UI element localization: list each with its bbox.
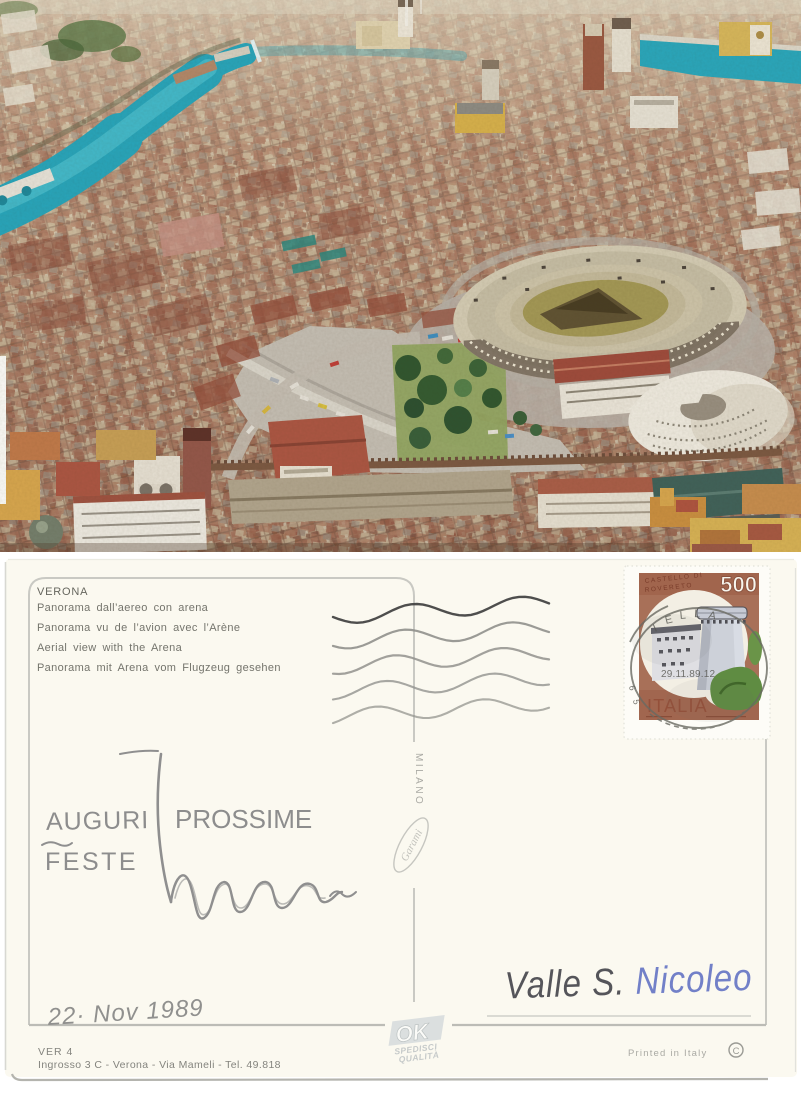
svg-text:C: C — [733, 1046, 740, 1057]
svg-text:L: L — [694, 608, 701, 620]
svg-text:Garami: Garami — [399, 828, 426, 864]
svg-text:500: 500 — [720, 572, 757, 597]
svg-text:29.11.89.12: 29.11.89.12 — [661, 669, 716, 680]
svg-text:L: L — [679, 610, 686, 622]
